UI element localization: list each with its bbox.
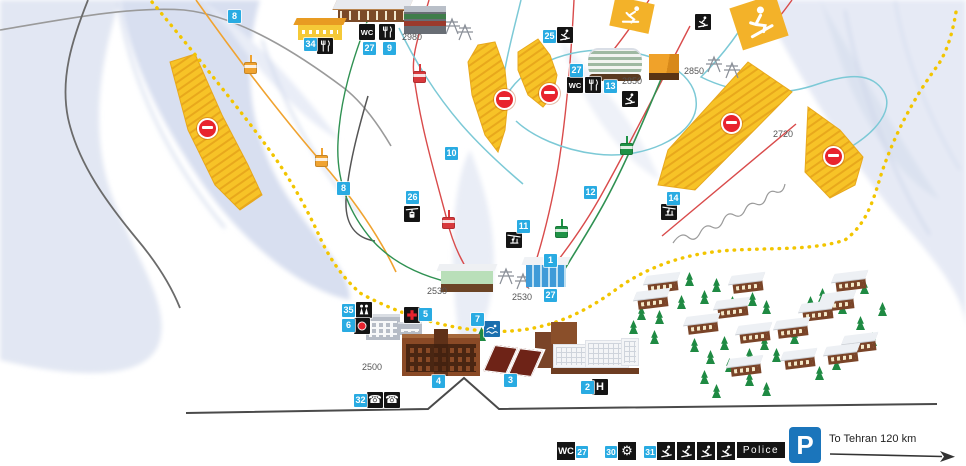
orange-gondola-cabin <box>314 148 330 169</box>
ski-resort-piste-map: 834279252713108261211141273565743232WCWC… <box>0 0 966 466</box>
tehran-direction-label: To Tehran 120 km <box>829 433 916 445</box>
ski-school-icon[interactable] <box>697 442 715 460</box>
orange-gondola-cabin <box>243 55 259 76</box>
lift-marker-7[interactable]: 7 <box>471 313 484 326</box>
elevation-label: 2530 <box>512 292 532 302</box>
lift-marker-14[interactable]: 14 <box>667 192 680 205</box>
elevation-label: 2530 <box>427 286 447 296</box>
restaurant-icon[interactable] <box>585 77 601 93</box>
lift-marker-5[interactable]: 5 <box>419 308 432 321</box>
hotel-building-4 <box>402 334 480 376</box>
no-entry-sign <box>721 113 742 134</box>
wc-icon[interactable]: WC <box>567 77 583 93</box>
lift-marker-32[interactable]: 32 <box>354 394 367 407</box>
chairlift-icon[interactable] <box>506 232 522 248</box>
lift-marker-8[interactable]: 8 <box>228 10 241 23</box>
elevation-label: 2850 <box>684 66 704 76</box>
gondola-icon[interactable] <box>404 206 420 222</box>
lift-marker-11[interactable]: 11 <box>517 220 530 233</box>
lift-marker-3[interactable]: 3 <box>504 374 517 387</box>
aid-icon[interactable] <box>404 307 420 323</box>
restaurant-icon[interactable] <box>317 38 333 54</box>
valley-road <box>186 378 937 413</box>
phone-icon[interactable]: ☎ <box>384 392 400 408</box>
lift-marker-26[interactable]: 26 <box>406 191 419 204</box>
lift-marker-9[interactable]: 9 <box>383 42 396 55</box>
ski-school-icon[interactable] <box>657 442 675 460</box>
lift-marker-13[interactable]: 13 <box>604 80 617 93</box>
round-restaurant-2850 <box>588 48 642 78</box>
restaurant-icon[interactable] <box>379 24 395 40</box>
elevation-label: 2720 <box>773 129 793 139</box>
ski-school-icon[interactable] <box>677 442 695 460</box>
lift-station-2850 <box>649 54 679 80</box>
green-gondola-cabin <box>554 219 570 240</box>
legend-gear-icon[interactable]: ⚙ <box>618 442 636 460</box>
legend-wc-icon[interactable]: WC <box>557 442 575 460</box>
station-building-2530 <box>441 266 493 292</box>
hotel-icon[interactable]: H <box>592 379 608 395</box>
terrain-canvas <box>0 0 966 466</box>
red-gondola-cabin <box>441 210 457 231</box>
legend-service-number[interactable]: 30 <box>605 446 617 458</box>
red-gondola-cabin <box>412 64 428 85</box>
pool-icon[interactable] <box>484 321 500 337</box>
no-entry-sign <box>197 118 218 139</box>
lift-marker-4[interactable]: 4 <box>432 375 445 388</box>
summit-chalet-building <box>338 0 408 22</box>
lift-marker-1[interactable]: 1 <box>544 254 557 267</box>
parking-sign[interactable]: P <box>789 427 821 463</box>
family-icon[interactable] <box>356 302 372 318</box>
chairlift-icon[interactable] <box>661 204 677 220</box>
lift-tower <box>722 60 742 80</box>
no-entry-sign <box>823 146 844 167</box>
wc-icon[interactable]: WC <box>359 24 375 40</box>
phone-icon[interactable]: ☎ <box>367 392 383 408</box>
no-entry-sign <box>494 89 515 110</box>
police-badge[interactable]: Police <box>737 442 785 458</box>
legend-wc-number[interactable]: 27 <box>576 446 588 458</box>
lift-marker-27[interactable]: 27 <box>544 289 557 302</box>
elevation-label: 2980 <box>402 32 422 42</box>
lift-marker-25[interactable]: 25 <box>543 30 556 43</box>
lift-marker-8[interactable]: 8 <box>337 182 350 195</box>
skier-icon[interactable] <box>695 14 711 30</box>
lift-marker-2[interactable]: 2 <box>581 381 594 394</box>
lift-marker-10[interactable]: 10 <box>445 147 458 160</box>
lift-marker-27[interactable]: 27 <box>363 42 376 55</box>
legend-school-number[interactable]: 31 <box>644 446 656 458</box>
lift-marker-12[interactable]: 12 <box>584 186 597 199</box>
gondola-station-2980 <box>404 6 446 34</box>
green-gondola-cabin <box>619 136 635 157</box>
tehran-direction-arrow <box>828 448 958 464</box>
reddot-icon[interactable] <box>354 318 370 334</box>
no-entry-sign <box>539 83 560 104</box>
ski-school-icon[interactable] <box>717 442 735 460</box>
lift-tower <box>455 22 475 42</box>
elevation-label: 2500 <box>362 362 382 372</box>
lift-marker-34[interactable]: 34 <box>304 38 317 51</box>
skier-icon[interactable] <box>557 27 573 43</box>
piste-dark-center <box>346 96 375 241</box>
lift-marker-27[interactable]: 27 <box>570 64 583 77</box>
lift-tower <box>704 54 724 74</box>
elevation-label: 2850 <box>622 76 642 86</box>
skier-icon[interactable] <box>622 91 638 107</box>
lift-marker-35[interactable]: 35 <box>342 304 355 317</box>
lift-marker-6[interactable]: 6 <box>342 319 355 332</box>
